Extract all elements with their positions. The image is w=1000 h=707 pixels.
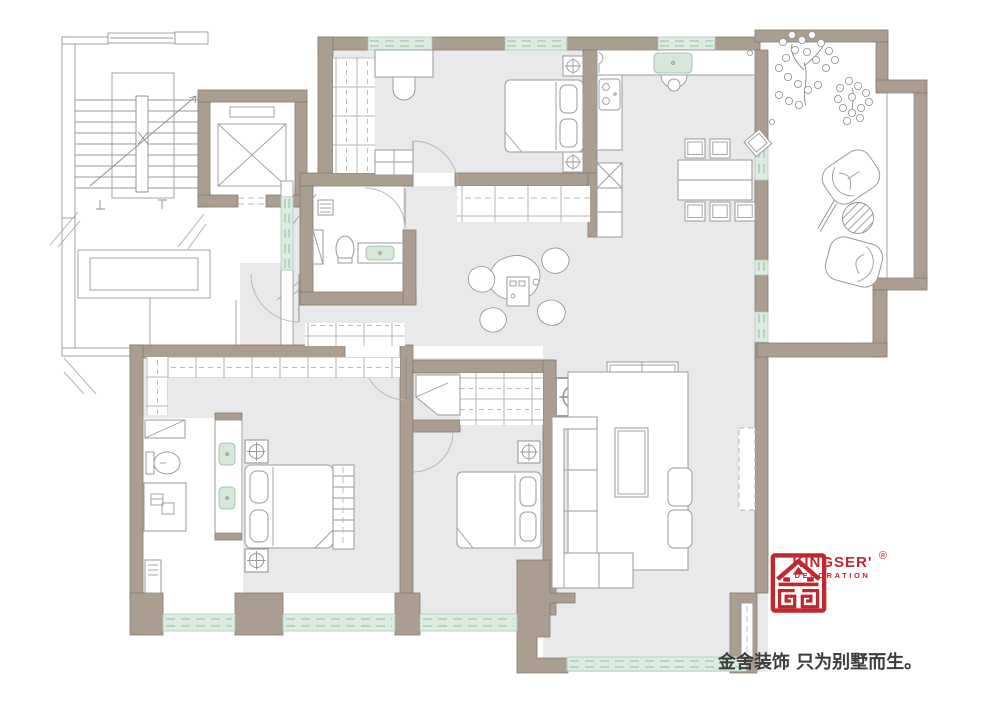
wardrobe-cabinet [333,57,375,173]
wardrobe-cabinet [460,373,543,400]
pillow [250,510,268,542]
balcony-recess [887,93,914,278]
stairwell [62,32,208,218]
refrigerator [597,163,622,188]
dining-chair [685,139,705,158]
coffee-table [615,428,648,497]
double-bed [457,472,541,548]
bathroom-shelf [318,200,333,215]
tv-cabinet [739,428,755,510]
wash-basin [358,243,403,263]
kingser-logo-icon [770,552,827,614]
wardrobe-cabinet [460,400,543,425]
stair-top-wall [62,37,108,44]
stair-top-pier [175,32,208,44]
lobby-structure [78,250,210,298]
pillow [520,477,536,506]
wardrobe-cabinet [146,357,168,415]
patio-round-table [843,203,874,234]
toilet [146,452,180,474]
pillow [250,471,268,503]
kitchen-sink [654,53,692,73]
floor-plan-page: ® KINGSER' DECORATION 金舍装饰 只为别墅而生。 [0,0,1000,707]
nightstand-lamp-table [563,152,583,172]
pillow [520,512,536,541]
section-cut-marks [96,200,167,209]
vanity-double-basin [215,420,242,533]
wardrobe-cabinet [168,357,400,378]
balcony-tree [775,31,838,108]
drain-hole [769,119,774,124]
balcony [769,31,889,290]
dining-chair [735,202,755,221]
double-bed [245,465,333,548]
bench [375,150,413,175]
registered-mark: ® [879,550,887,562]
nightstand-lamp-table [518,441,540,463]
dining-chair [710,139,730,158]
stair-left-wall [62,37,75,218]
toilet [336,236,354,263]
floor-plan-drawing [0,0,1000,707]
window-hatch [420,614,517,631]
lounge-chair [793,144,889,231]
opening-break-mark [64,358,96,394]
dining-chair [710,202,730,221]
shoe-cabinet [305,323,405,346]
brand-tagline: 金舍装饰 只为别墅而生。 [640,648,1000,674]
armchair [668,468,692,506]
desk [375,50,433,77]
double-bed [505,80,583,152]
dining-chair [685,202,705,221]
kingser-logo-block: ® KINGSER' DECORATION [770,552,895,580]
pillow [560,85,577,113]
lobby-left-wall [62,218,75,356]
window-hatch [368,37,432,50]
window-hatch [163,614,235,631]
desk-chair [393,77,415,100]
elevator-cab [218,124,286,186]
nightstand-lamp-table [563,56,583,76]
opening-break-mark [178,214,206,249]
stair-stringer [136,96,148,192]
window-hatch [281,197,293,270]
laundry-cabinet [145,560,161,593]
bench [333,465,354,549]
window-hatch [658,37,715,50]
pillow [560,119,577,147]
armchair [668,510,692,548]
tall-cabinet [597,188,622,237]
window-hatch [283,614,395,631]
shower-tray [313,230,323,264]
shower-tray [145,420,185,438]
hall-cabinet [457,186,590,222]
nightstand-lamp-table [245,440,268,463]
window-hatch [755,312,768,342]
balcony-tree [834,77,872,124]
dining-table [678,160,752,200]
elevator-counterweight [230,107,274,117]
desk [144,483,186,531]
window-hatch [505,37,567,50]
window-hatch [755,260,768,275]
nightstand-lamp-table [245,549,268,572]
